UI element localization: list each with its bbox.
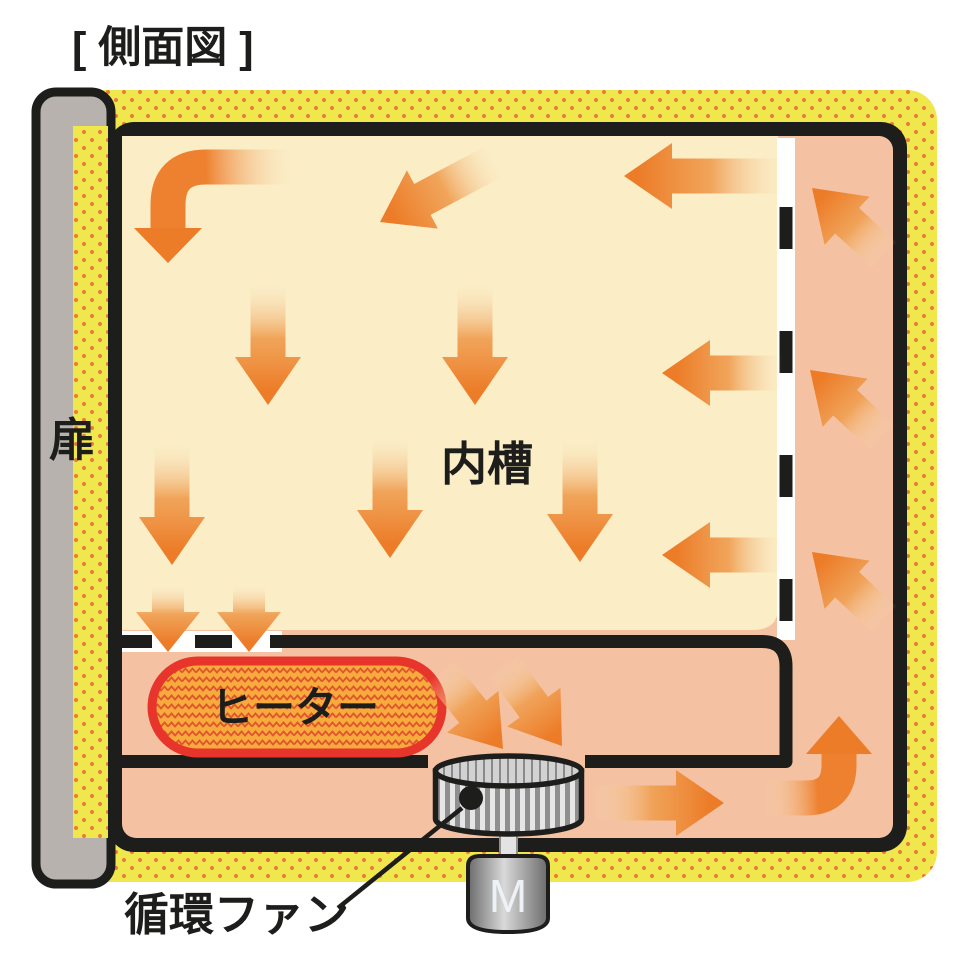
fan-top: [436, 756, 582, 786]
motor-label: M: [489, 870, 527, 922]
door-label: 扉: [49, 414, 95, 466]
page-title: [ 側面図 ]: [72, 24, 254, 72]
motor: M: [468, 856, 548, 932]
inner-chamber-label: 内槽: [441, 438, 533, 490]
door-insulation-strip: [73, 126, 108, 838]
side-view-diagram: M [ 側面図 ] 扉 内槽 ヒーター 循環ファン: [0, 0, 965, 965]
circulation-fan-label: 循環ファン: [124, 889, 349, 940]
fan-callout-dot: [459, 786, 483, 810]
heater-label: ヒーター: [211, 684, 379, 731]
diagram-canvas: M [ 側面図 ] 扉 内槽 ヒーター 循環ファン: [0, 0, 965, 965]
